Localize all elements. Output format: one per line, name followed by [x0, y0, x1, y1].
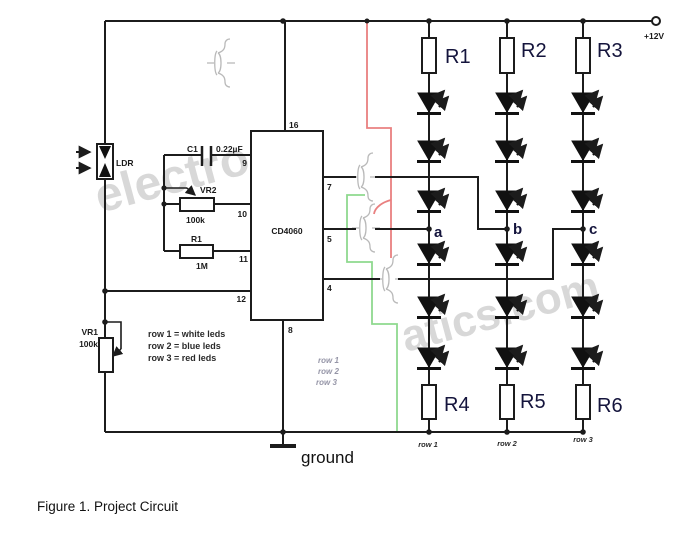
- led-icon: [495, 91, 526, 115]
- legend-line-3: row 3 = red leds: [148, 353, 216, 363]
- pin-8-label: 8: [288, 325, 293, 335]
- resistor-r3-label: R3: [597, 40, 623, 62]
- led-icon: [571, 189, 602, 213]
- pin-4-label: 4: [327, 283, 332, 293]
- faint-row-2: row 2: [318, 367, 339, 376]
- resistor-r6-label: R6: [597, 395, 623, 417]
- led-icon: [571, 91, 602, 115]
- ldr-label: LDR: [116, 158, 133, 168]
- vr1-body: [99, 338, 113, 372]
- led-icon: [495, 139, 526, 163]
- column-1-row-label: row 1: [418, 440, 438, 449]
- vr1-label: VR1: [81, 327, 98, 337]
- red-wire: [367, 21, 391, 258]
- c1-label: C1: [187, 144, 198, 154]
- circuit-figure: electro atics.com: [0, 0, 691, 535]
- resistor-r1-body: [422, 38, 436, 73]
- circuit-diagram: electro atics.com: [0, 0, 691, 535]
- c1-value-label: 0.22µF: [216, 144, 243, 154]
- resistor-r1-label: R1: [445, 46, 471, 68]
- resistor-r4-label: R4: [444, 394, 470, 416]
- faint-row-1: row 1: [318, 356, 339, 365]
- ic-name-label: CD4060: [271, 226, 302, 236]
- led-icon: [571, 139, 602, 163]
- power-label: +12V: [644, 31, 664, 41]
- r1-1m-body: [180, 245, 213, 258]
- vr2-value-label: 100k: [186, 215, 205, 225]
- green-wire: [347, 195, 397, 431]
- vr1-value-label: 100k: [79, 339, 98, 349]
- led-icon: [417, 91, 448, 115]
- vr2-body: [180, 198, 214, 211]
- resistor-r5-label: R5: [520, 391, 546, 413]
- resistor-r4-body: [422, 385, 436, 419]
- vr2-label: VR2: [200, 185, 217, 195]
- pin-10-label: 10: [238, 209, 248, 219]
- pin-11-label: 11: [239, 254, 248, 264]
- wiring: [76, 21, 652, 446]
- led-icon: [417, 139, 448, 163]
- node-a-label: a: [434, 224, 443, 241]
- ground-label: ground: [301, 448, 354, 467]
- node-c-label: c: [589, 221, 597, 238]
- pin-9-label: 9: [242, 158, 247, 168]
- pin-5-label: 5: [327, 234, 332, 244]
- pin-7-label: 7: [327, 182, 332, 192]
- led-icon: [495, 189, 526, 213]
- faint-row-3: row 3: [316, 378, 337, 387]
- pin-12-label: 12: [237, 294, 247, 304]
- r1-1m-label: R1: [191, 234, 202, 244]
- r1-1m-value-label: 1M: [196, 261, 208, 271]
- power-terminal: [652, 17, 660, 25]
- figure-caption: Figure 1. Project Circuit: [37, 499, 178, 514]
- led-icon: [495, 242, 526, 266]
- legend-line-1: row 1 = white leds: [148, 329, 225, 339]
- transistor-icon: [207, 39, 235, 87]
- led-icon: [571, 346, 602, 370]
- legend-line-2: row 2 = blue leds: [148, 341, 221, 351]
- ldr-symbol: [97, 144, 113, 179]
- column-2-row-label: row 2: [497, 439, 517, 448]
- resistor-r6-body: [576, 385, 590, 419]
- column-3-row-label: row 3: [573, 435, 593, 444]
- pin-16-label: 16: [289, 120, 299, 130]
- led-icon: [495, 346, 526, 370]
- resistor-r2-body: [500, 38, 514, 73]
- node-b-label: b: [513, 221, 522, 238]
- resistor-r2-label: R2: [521, 40, 547, 62]
- led-icon: [417, 189, 448, 213]
- resistor-r3-body: [576, 38, 590, 73]
- resistor-r5-body: [500, 385, 514, 419]
- led-icon: [417, 242, 448, 266]
